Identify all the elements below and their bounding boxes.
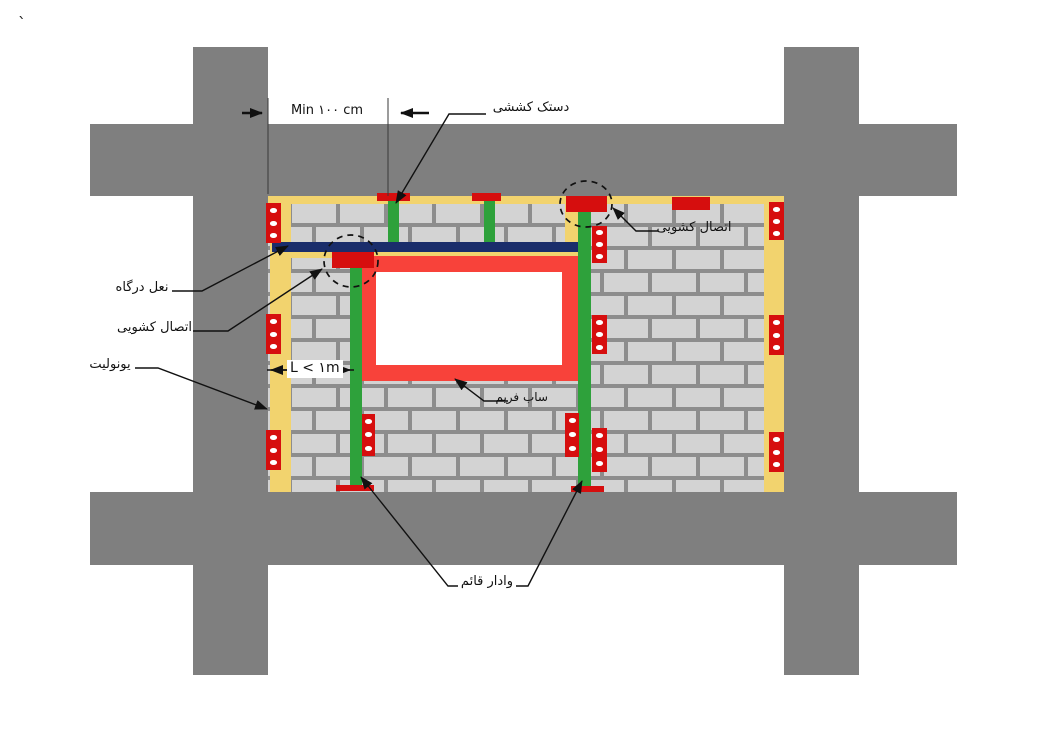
bolt-hole bbox=[596, 230, 603, 235]
bolt-hole bbox=[270, 208, 277, 213]
bolt-hole bbox=[569, 446, 576, 451]
bolt-hole bbox=[270, 448, 277, 453]
masonry-block bbox=[340, 204, 384, 223]
masonry-block bbox=[700, 273, 744, 292]
masonry-block bbox=[700, 457, 744, 476]
vertical-post-left bbox=[350, 266, 362, 487]
masonry-block bbox=[628, 434, 672, 453]
masonry-block bbox=[436, 434, 480, 453]
post-base-plate-right bbox=[571, 486, 604, 492]
masonry-block bbox=[676, 250, 720, 269]
masonry-block bbox=[292, 342, 336, 361]
sliding-connection-cap-left bbox=[332, 252, 374, 268]
bolt-hole bbox=[596, 254, 603, 259]
bolt-hole bbox=[596, 345, 603, 350]
masonry-block bbox=[460, 457, 504, 476]
connection-plate bbox=[769, 432, 784, 472]
masonry-block bbox=[628, 296, 672, 315]
bolt-hole bbox=[270, 221, 277, 226]
masonry-block bbox=[604, 411, 648, 430]
post-base-plate-left bbox=[336, 485, 374, 491]
bolt-hole bbox=[773, 437, 780, 442]
masonry-block bbox=[292, 480, 336, 492]
masonry-block bbox=[676, 434, 720, 453]
bolt-hole bbox=[270, 460, 277, 465]
masonry-block bbox=[388, 388, 432, 407]
connection-plate bbox=[769, 202, 784, 240]
connection-plate bbox=[266, 314, 281, 354]
masonry-block bbox=[508, 457, 552, 476]
masonry-block bbox=[388, 434, 432, 453]
masonry-block bbox=[532, 480, 576, 492]
lintel-bar bbox=[272, 242, 590, 252]
bolt-hole bbox=[270, 319, 277, 324]
masonry-block bbox=[460, 411, 504, 430]
masonry-block bbox=[484, 434, 528, 453]
tension-strut-post-2 bbox=[484, 200, 495, 242]
bolt-hole bbox=[270, 233, 277, 238]
masonry-block bbox=[388, 480, 432, 492]
masonry-block bbox=[676, 296, 720, 315]
masonry-block bbox=[436, 388, 480, 407]
masonry-block bbox=[700, 319, 744, 338]
bolt-hole bbox=[773, 320, 780, 325]
label-styrofoam: یونولیت bbox=[86, 357, 134, 373]
bolt-hole bbox=[365, 432, 372, 437]
masonry-block bbox=[604, 457, 648, 476]
strut-cap-2 bbox=[472, 193, 501, 201]
masonry-block bbox=[676, 342, 720, 361]
bolt-hole bbox=[569, 432, 576, 437]
connection-plate bbox=[266, 203, 281, 243]
connection-plate bbox=[592, 428, 607, 472]
masonry-block bbox=[604, 365, 648, 384]
label-vertical-post: وادار قائم bbox=[456, 574, 518, 590]
beam-top bbox=[90, 124, 957, 196]
stray-mark: ` bbox=[18, 14, 26, 33]
masonry-block bbox=[676, 388, 720, 407]
beam-bottom bbox=[90, 492, 957, 565]
masonry-block bbox=[292, 204, 336, 223]
connection-plate bbox=[769, 315, 784, 355]
bolt-hole bbox=[773, 207, 780, 212]
masonry-block bbox=[652, 365, 696, 384]
label-sub-frame: ساب فریم bbox=[504, 390, 548, 405]
masonry-block bbox=[604, 319, 648, 338]
strut-cap-1 bbox=[377, 193, 410, 201]
sliding-connection-cap-right bbox=[566, 196, 607, 212]
masonry-block bbox=[724, 480, 768, 492]
label-sliding-connection-left: اتصال کشویی bbox=[120, 320, 192, 336]
masonry-block bbox=[652, 457, 696, 476]
bolt-hole bbox=[596, 447, 603, 452]
bolt-hole bbox=[569, 418, 576, 423]
bolt-hole bbox=[773, 345, 780, 350]
vertical-post-right bbox=[578, 212, 591, 487]
bolt-hole bbox=[773, 231, 780, 236]
masonry-block bbox=[484, 480, 528, 492]
masonry-block bbox=[412, 457, 456, 476]
masonry-block bbox=[628, 342, 672, 361]
masonry-block bbox=[508, 411, 552, 430]
masonry-block bbox=[652, 319, 696, 338]
masonry-block bbox=[628, 250, 672, 269]
bolt-hole bbox=[773, 450, 780, 455]
bolt-hole bbox=[365, 446, 372, 451]
dimension-window-label: L < ۱m bbox=[287, 360, 343, 378]
masonry-block bbox=[604, 227, 648, 246]
masonry-block bbox=[724, 434, 768, 453]
label-lintel: نعل درگاه bbox=[112, 280, 172, 296]
connection-plate bbox=[362, 414, 375, 456]
masonry-block bbox=[628, 388, 672, 407]
bolt-hole bbox=[596, 242, 603, 247]
bolt-hole bbox=[596, 433, 603, 438]
masonry-block bbox=[724, 296, 768, 315]
connection-plate bbox=[266, 430, 281, 470]
bolt-hole bbox=[773, 462, 780, 467]
masonry-block bbox=[652, 411, 696, 430]
masonry-block bbox=[604, 273, 648, 292]
bolt-hole bbox=[270, 332, 277, 337]
bolt-hole bbox=[270, 435, 277, 440]
bolt-hole bbox=[596, 320, 603, 325]
masonry-block bbox=[724, 342, 768, 361]
masonry-block bbox=[292, 434, 336, 453]
masonry-block bbox=[700, 365, 744, 384]
construction-detail-diagram: ` Min ۱۰۰ cm دستک کششی اتصال کشویی نعل د… bbox=[0, 0, 1050, 742]
connection-plate bbox=[565, 413, 579, 457]
bolt-hole bbox=[596, 461, 603, 466]
connection-plate bbox=[592, 226, 607, 263]
bolt-hole bbox=[365, 419, 372, 424]
bolt-hole bbox=[773, 219, 780, 224]
bolt-hole bbox=[773, 333, 780, 338]
masonry-block bbox=[292, 296, 336, 315]
masonry-block bbox=[676, 480, 720, 492]
dimension-top-label: Min ۱۰۰ cm bbox=[288, 103, 366, 119]
masonry-block bbox=[628, 480, 672, 492]
connection-plate bbox=[592, 315, 607, 354]
masonry-block bbox=[652, 273, 696, 292]
masonry-block bbox=[364, 457, 408, 476]
label-tension-strut: دستک کششی bbox=[484, 100, 578, 116]
masonry-block bbox=[436, 204, 480, 223]
masonry-block bbox=[724, 250, 768, 269]
label-sliding-connection-right: اتصال کشویی bbox=[656, 220, 732, 236]
masonry-block bbox=[700, 411, 744, 430]
bolt-hole bbox=[270, 344, 277, 349]
bolt-hole bbox=[596, 332, 603, 337]
masonry-block bbox=[724, 388, 768, 407]
top-connection-pad bbox=[672, 197, 710, 210]
masonry-block bbox=[436, 480, 480, 492]
window-opening bbox=[376, 272, 562, 365]
tension-strut-post-1 bbox=[388, 200, 399, 242]
masonry-block bbox=[292, 388, 336, 407]
masonry-block bbox=[340, 388, 384, 407]
masonry-block bbox=[412, 411, 456, 430]
